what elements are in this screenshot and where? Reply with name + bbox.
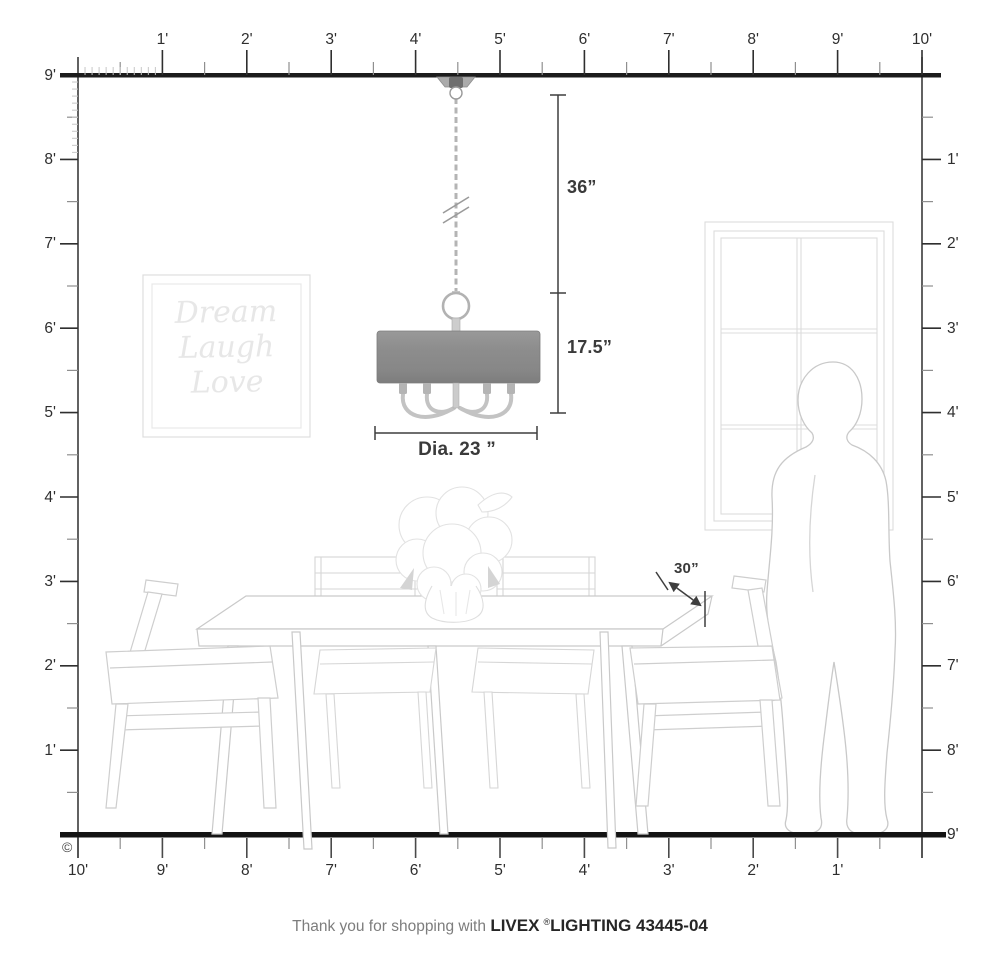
ruler-label-left-3': 3': [14, 572, 56, 591]
far-chair-seats: [314, 648, 594, 788]
ruler-label-top-2': 2': [225, 30, 269, 49]
ruler-label-left-6': 6': [14, 319, 56, 338]
model-number: LIGHTING 43445-04: [550, 916, 708, 935]
ruler-label-right-3': 3': [947, 319, 989, 338]
wall-art-line1: Dream: [149, 294, 303, 332]
ruler-label-top-8': 8': [731, 30, 775, 49]
ruler-label-right-8': 8': [947, 741, 989, 760]
dimension-shade-height-label: 17.5”: [567, 337, 612, 358]
ruler-label-right-2': 2': [947, 234, 989, 253]
ruler-label-right-9': 9': [947, 825, 989, 844]
dimension-table-clearance-label: 30”: [674, 560, 699, 577]
brand-name: LIVEX: [490, 916, 539, 935]
dimension-drop-label: 36”: [567, 177, 597, 198]
ruler-label-top-9': 9': [816, 30, 860, 49]
floor-line: [60, 832, 946, 838]
wall-art-text: Dream Laugh Love: [149, 294, 304, 402]
ruler-label-bottom-2': 2': [731, 861, 775, 880]
ruler-label-bottom-5': 5': [478, 861, 522, 880]
chain-break-mark: [443, 197, 469, 213]
drum-shade: [377, 331, 540, 383]
footer-prefix: Thank you for shopping with: [292, 918, 486, 935]
wall-art-line3: Love: [150, 364, 304, 402]
ruler-label-right-4': 4': [947, 403, 989, 422]
ruler-label-bottom-3': 3': [647, 861, 691, 880]
ruler-label-left-2': 2': [14, 656, 56, 675]
ruler-label-left-1': 1': [14, 741, 56, 760]
copyright-symbol: ©: [62, 839, 72, 855]
table-leg: [292, 632, 312, 849]
pendant-fixture: [377, 77, 540, 417]
ruler-label-top-7': 7': [647, 30, 691, 49]
ruler-label-top-10': 10': [900, 30, 944, 49]
ruler-label-right-7': 7': [947, 656, 989, 675]
ruler-label-right-6': 6': [947, 572, 989, 591]
ruler-label-top-5': 5': [478, 30, 522, 49]
ruler-label-left-7': 7': [14, 234, 56, 253]
ruler-label-left-9': 9': [14, 66, 56, 85]
ruler-label-bottom-7': 7': [309, 861, 353, 880]
dining-table: [197, 596, 712, 849]
ruler-label-bottom-10': 10': [56, 861, 100, 880]
wall-art-line2: Laugh: [150, 329, 304, 367]
ruler-label-left-5': 5': [14, 403, 56, 422]
ruler-label-left-4': 4': [14, 488, 56, 507]
ruler-label-bottom-1': 1': [816, 861, 860, 880]
ruler-label-top-1': 1': [140, 30, 184, 49]
dimension-diagram: 1'2'3'4'5'6'7'8'9'10'9'8'7'6'5'4'3'2'1'1…: [0, 0, 1000, 958]
ruler-label-bottom-6': 6': [394, 861, 438, 880]
ruler-label-right-1': 1': [947, 150, 989, 169]
table-leg: [600, 632, 616, 848]
ruler-label-top-3': 3': [309, 30, 353, 49]
ruler-label-top-4': 4': [394, 30, 438, 49]
ruler-label-bottom-9': 9': [140, 861, 184, 880]
vase: [425, 586, 483, 622]
ring-ornament: [443, 293, 469, 319]
person-silhouette: [767, 362, 896, 835]
ruler-label-right-5': 5': [947, 488, 989, 507]
ruler-label-left-8': 8': [14, 150, 56, 169]
ruler-label-bottom-4': 4': [562, 861, 606, 880]
ruler-label-top-6': 6': [562, 30, 606, 49]
dimension-diameter-label: Dia. 23 ”: [378, 439, 536, 461]
scene-svg: [0, 0, 1000, 958]
footer-caption: Thank you for shopping with LIVEX®LIGHTI…: [0, 916, 1000, 936]
ruler-label-bottom-8': 8': [225, 861, 269, 880]
